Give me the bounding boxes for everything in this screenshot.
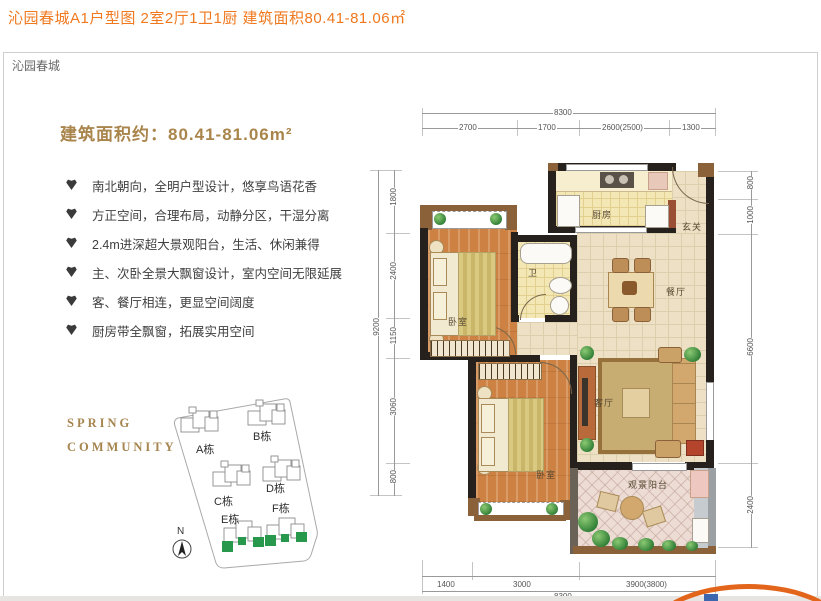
- table-centerpiece: [622, 281, 637, 295]
- dim-label: 2600(2500): [601, 123, 644, 132]
- dim-extension: [386, 358, 410, 359]
- plant-icon: [580, 346, 594, 360]
- pillow: [433, 258, 447, 286]
- kitchen-sink: [557, 195, 580, 227]
- entry-cabinet: [668, 200, 676, 228]
- dim-label: 3000: [512, 580, 532, 589]
- wardrobe: [478, 363, 542, 380]
- feature-item: 2.4m进深超大景观阳台，生活、休闲兼得: [92, 234, 320, 253]
- dim-label: 1150: [389, 327, 398, 344]
- feature-item: 客、餐厅相连，更显空间阔度: [92, 292, 255, 311]
- frame-label: 沁园春城: [12, 57, 60, 74]
- dim-label: 800: [389, 470, 398, 483]
- dim-extension: [370, 170, 402, 171]
- kitchen-pass-window: [575, 227, 647, 233]
- wall-segment: [511, 315, 519, 322]
- bathtub: [520, 243, 572, 264]
- wall-segment: [708, 468, 716, 554]
- kitchen-label: 厨房: [592, 208, 612, 221]
- dim-label: 6600: [746, 338, 755, 356]
- dim-label: 8300: [553, 108, 573, 117]
- bath-label: 卫: [528, 266, 538, 279]
- wall-segment: [570, 355, 577, 468]
- wall-segment: [570, 468, 578, 554]
- dim-extension: [718, 547, 758, 548]
- brand-line1: SPRING: [67, 416, 132, 431]
- plant-icon: [490, 213, 502, 225]
- wall-segment: [577, 462, 632, 470]
- dim-extension: [422, 560, 423, 594]
- dim-extension: [718, 171, 758, 172]
- feature-item: 厨房带全飘窗，拓展实用空间: [92, 321, 255, 340]
- entry-label: 玄关: [682, 220, 702, 233]
- dim-label: 3900(3800): [625, 580, 668, 589]
- armchair: [658, 347, 682, 363]
- dim-extension: [386, 318, 410, 319]
- feature-item: 主、次卧全景大飘窗设计，室内空间无限延展: [92, 263, 342, 282]
- compass-n-label: N: [177, 526, 184, 537]
- balcony-sliding-door: [632, 463, 687, 471]
- building-b-shape: [248, 400, 285, 425]
- dining-chair: [634, 307, 651, 322]
- living-label: 客厅: [594, 396, 614, 409]
- dim-label: 1700: [537, 123, 557, 132]
- bedroom2-label: 卧室: [536, 468, 556, 481]
- burner: [619, 175, 628, 184]
- armchair: [655, 440, 681, 458]
- bedroom1-label: 卧室: [448, 315, 468, 328]
- brand-line2: COMMUNITY: [67, 440, 177, 455]
- dim-extension: [370, 495, 402, 496]
- balcony-label: 观景阳台: [628, 478, 668, 491]
- pillow: [481, 437, 495, 466]
- dim-label: 3060: [389, 398, 398, 416]
- kitchen-top-window: [566, 164, 648, 171]
- dim-extension: [386, 463, 410, 464]
- dim-label: 2400: [389, 262, 398, 280]
- living-right-window: [706, 382, 714, 442]
- dim-label: 2400: [746, 496, 755, 514]
- wall-segment: [474, 515, 566, 521]
- dim-extension: [472, 562, 473, 580]
- plant-icon: [480, 503, 492, 515]
- plant-icon: [592, 530, 610, 547]
- wall-segment: [548, 171, 556, 233]
- dim-extension: [579, 562, 580, 580]
- floorplan-page: 沁园春城A1户型图 2室2厅1卫1厨 建筑面积80.41-81.06㎡ 沁园春城…: [0, 0, 821, 601]
- dim-line: [422, 576, 716, 577]
- plant-icon: [612, 537, 628, 550]
- wall-segment: [420, 228, 428, 360]
- balcony-table: [620, 496, 644, 520]
- dim-label: 1300: [681, 123, 701, 132]
- dim-label: 9200: [372, 318, 381, 336]
- dining-chair: [634, 258, 651, 273]
- corridor-floor: [517, 322, 577, 355]
- dining-chair: [612, 258, 629, 273]
- dim-label: 800: [746, 176, 755, 189]
- wall-segment: [511, 232, 518, 322]
- wall-segment: [511, 235, 577, 242]
- plant-icon: [578, 512, 598, 532]
- dim-line: [751, 171, 752, 548]
- wall-segment: [420, 205, 432, 230]
- area-heading: 建筑面积约：80.41-81.06m²: [60, 120, 293, 145]
- bed-blanket: [508, 398, 544, 472]
- side-table: [686, 440, 704, 456]
- tv: [582, 378, 588, 426]
- wall-segment: [468, 358, 476, 506]
- building-f-label: F栋: [272, 500, 290, 516]
- burner: [605, 175, 614, 184]
- dim-extension: [718, 199, 758, 200]
- dim-extension: [718, 234, 758, 235]
- page-title: 沁园春城A1户型图 2室2厅1卫1厨 建筑面积80.41-81.06㎡: [8, 7, 406, 28]
- washing-machine: [692, 518, 709, 543]
- coffee-table: [622, 388, 650, 418]
- utility-cabinet: [690, 470, 709, 498]
- plant-icon: [580, 438, 594, 452]
- building-a-label: A栋: [196, 441, 214, 457]
- plant-icon: [546, 503, 558, 515]
- wardrobe: [430, 340, 510, 357]
- plant-icon: [662, 540, 676, 551]
- kitchen-cabinet: [648, 172, 668, 190]
- building-e-label: E栋: [221, 511, 239, 527]
- feature-item: 南北朝向，全明户型设计，悠享鸟语花香: [92, 176, 317, 195]
- dining-chair: [612, 307, 629, 322]
- plant-icon: [686, 541, 698, 551]
- wall-segment: [545, 315, 577, 322]
- plant-icon: [638, 538, 654, 551]
- pillow: [481, 404, 495, 433]
- sink: [550, 296, 569, 315]
- pillow: [433, 292, 447, 320]
- compass-icon: [169, 537, 195, 563]
- dim-extension: [386, 233, 410, 234]
- sofa: [672, 358, 696, 444]
- building-d-label: D栋: [266, 480, 285, 496]
- dim-label: 1800: [389, 188, 398, 206]
- plant-icon: [434, 213, 446, 225]
- building-a-shape: [181, 407, 218, 432]
- toilet: [549, 277, 572, 294]
- dining-label: 餐厅: [666, 285, 686, 298]
- dim-extension: [718, 463, 758, 464]
- dim-label: 1000: [746, 206, 755, 224]
- building-c-label: C栋: [214, 493, 233, 509]
- dim-label: 2700: [458, 123, 478, 132]
- dim-label: 1400: [436, 580, 456, 589]
- feature-item: 方正空间，合理布局，动静分区，干湿分离: [92, 205, 330, 224]
- building-b-label: B栋: [253, 428, 271, 444]
- flower-arrangement: [684, 347, 701, 362]
- fridge: [645, 205, 669, 228]
- wall-segment: [706, 177, 714, 382]
